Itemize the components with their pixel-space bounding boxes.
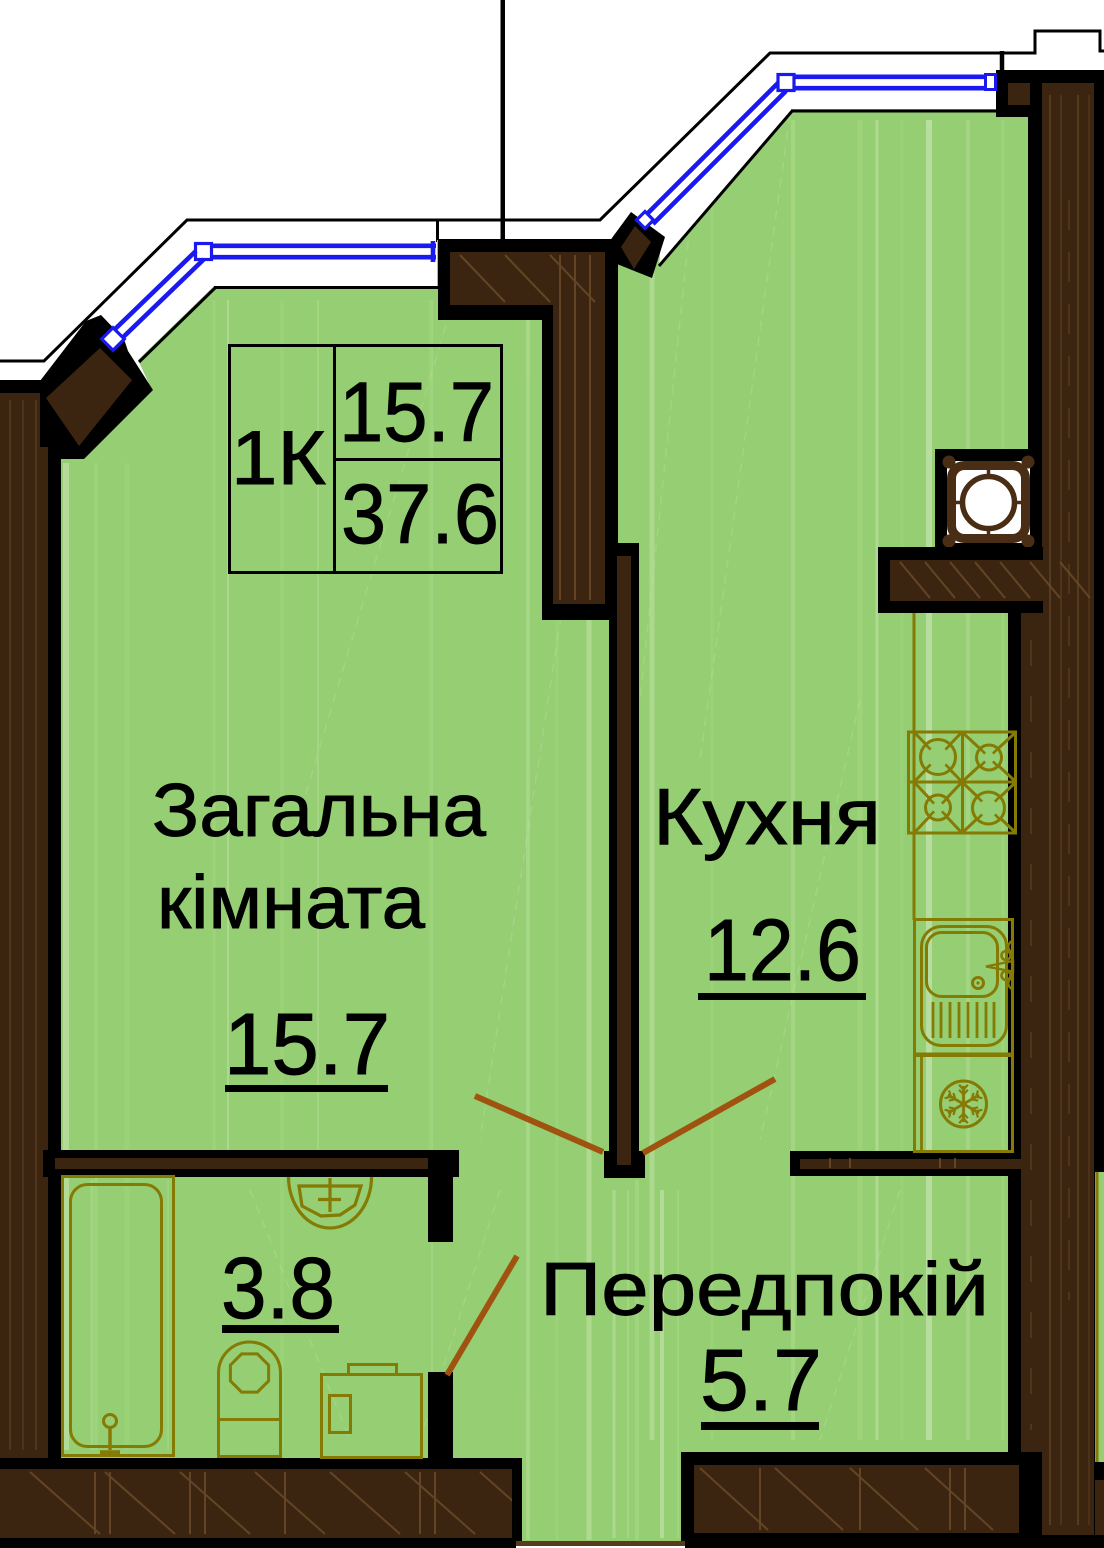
- svg-text:3.8: 3.8: [221, 1240, 335, 1337]
- svg-text:Кухня: Кухня: [653, 772, 881, 861]
- svg-text:5.7: 5.7: [700, 1332, 822, 1429]
- svg-text:кімната: кімната: [157, 860, 425, 944]
- svg-text:12.6: 12.6: [704, 902, 861, 999]
- svg-text:1К: 1К: [231, 416, 326, 501]
- svg-text:15.7: 15.7: [339, 365, 494, 459]
- svg-text:Передпокій: Передпокій: [540, 1247, 989, 1331]
- svg-text:Загальна: Загальна: [152, 768, 486, 852]
- svg-text:15.7: 15.7: [224, 996, 390, 1093]
- svg-text:37.6: 37.6: [341, 467, 499, 561]
